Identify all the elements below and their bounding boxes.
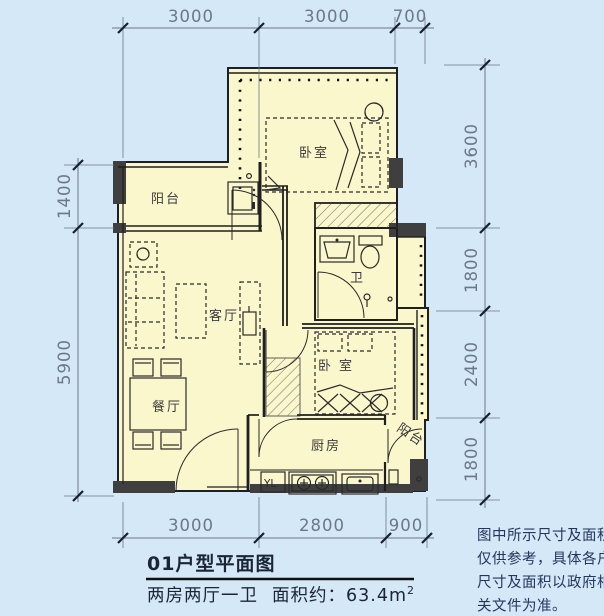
dim-right-1: 1800	[462, 247, 481, 293]
plan-area: 面积约：63.4m2	[272, 584, 415, 606]
note-line-3: 尺寸及面积以政府相	[477, 574, 604, 591]
label-balcony-top: 阳台	[151, 192, 181, 207]
label-dining: 餐厅	[152, 399, 182, 415]
dim-top-1: 3000	[304, 7, 350, 26]
dim-bottom-1: 2800	[299, 516, 345, 535]
note-line-4: 关文件为准。	[477, 598, 567, 615]
floor-plan-canvas: 阳台 卧室 客厅 卫 餐厅 卧室 厨房 阳台 YL 3000 3000 700	[0, 0, 604, 616]
label-kitchen: 厨房	[311, 438, 341, 454]
note-line-2: 仅供参考，具体各户	[477, 551, 604, 568]
dim-right-0: 3600	[462, 123, 481, 169]
label-living: 客厅	[209, 308, 239, 324]
note-line-1: 图中所示尺寸及面积	[477, 527, 604, 544]
label-washer-box: YL	[263, 478, 276, 490]
dim-left-0: 1400	[55, 173, 74, 219]
label-bedroom-top: 卧室	[299, 145, 329, 161]
plan-title: 01户型平面图	[147, 552, 275, 575]
dim-right-3: 1800	[462, 436, 481, 482]
dim-bottom-2: 900	[389, 516, 424, 535]
plan-layout: 两房两厅一卫	[147, 586, 258, 606]
dim-right-2: 2400	[462, 341, 481, 387]
dim-bottom-0: 3000	[168, 516, 214, 535]
label-bath: 卫	[350, 271, 365, 286]
dim-top-2: 700	[393, 7, 428, 26]
dim-top-0: 3000	[168, 7, 214, 26]
dim-left-1: 5900	[55, 339, 74, 385]
label-bedroom-right: 卧室	[318, 358, 360, 374]
